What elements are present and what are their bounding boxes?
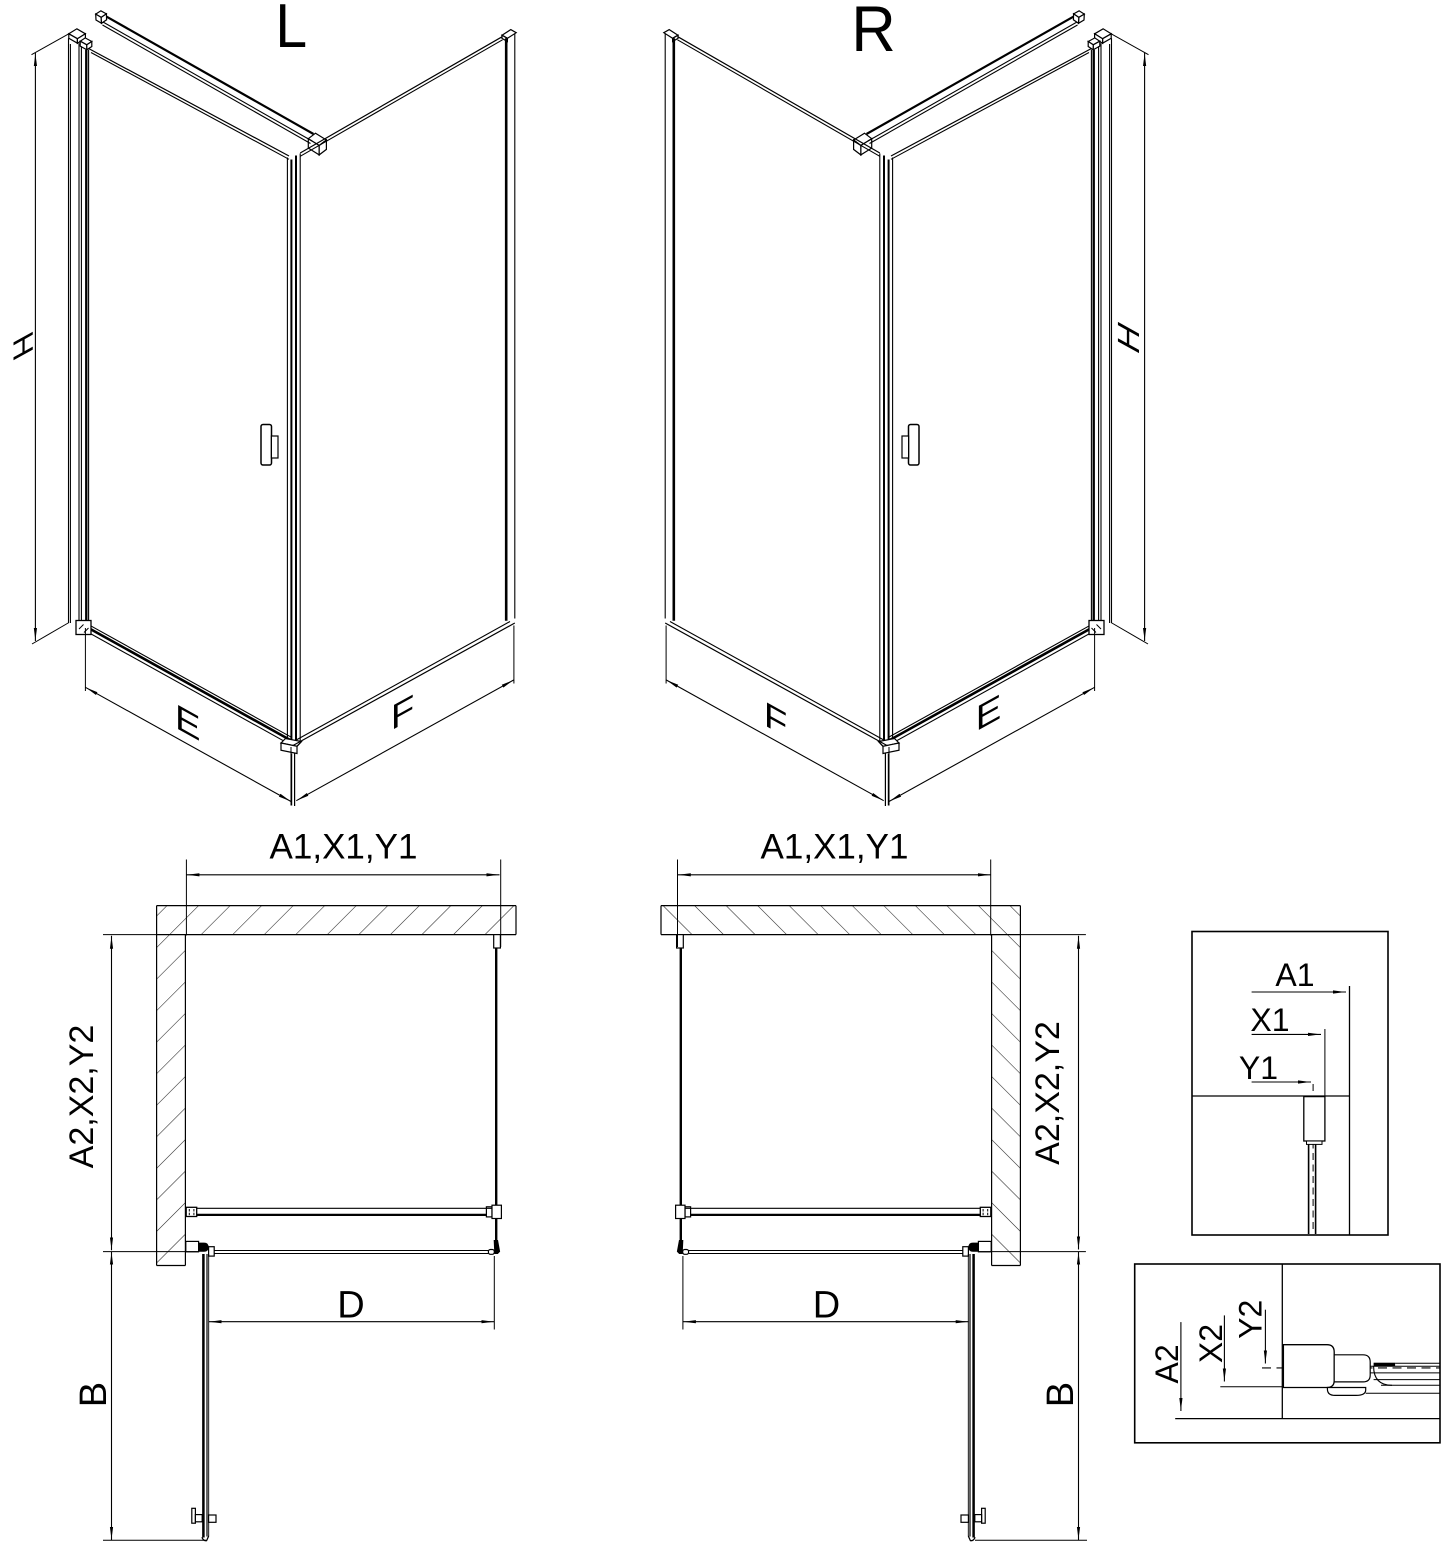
svg-text:Y2: Y2 bbox=[1233, 1300, 1269, 1339]
svg-text:X2: X2 bbox=[1193, 1324, 1229, 1363]
svg-text:A2,X2,Y2: A2,X2,Y2 bbox=[63, 1025, 101, 1169]
svg-text:R: R bbox=[851, 0, 895, 65]
svg-text:X1: X1 bbox=[1250, 1002, 1289, 1038]
svg-text:L: L bbox=[275, 0, 307, 61]
svg-text:Y1: Y1 bbox=[1239, 1050, 1278, 1086]
svg-text:D: D bbox=[337, 1285, 364, 1327]
svg-text:A1,X1,Y1: A1,X1,Y1 bbox=[270, 828, 418, 867]
svg-text:D: D bbox=[813, 1285, 840, 1327]
svg-text:B: B bbox=[1040, 1382, 1082, 1407]
svg-text:A2: A2 bbox=[1149, 1344, 1185, 1383]
svg-text:A2,X2,Y2: A2,X2,Y2 bbox=[1029, 1021, 1067, 1165]
svg-text:A1: A1 bbox=[1275, 957, 1314, 993]
svg-text:A1,X1,Y1: A1,X1,Y1 bbox=[761, 828, 909, 867]
svg-text:B: B bbox=[73, 1382, 115, 1407]
